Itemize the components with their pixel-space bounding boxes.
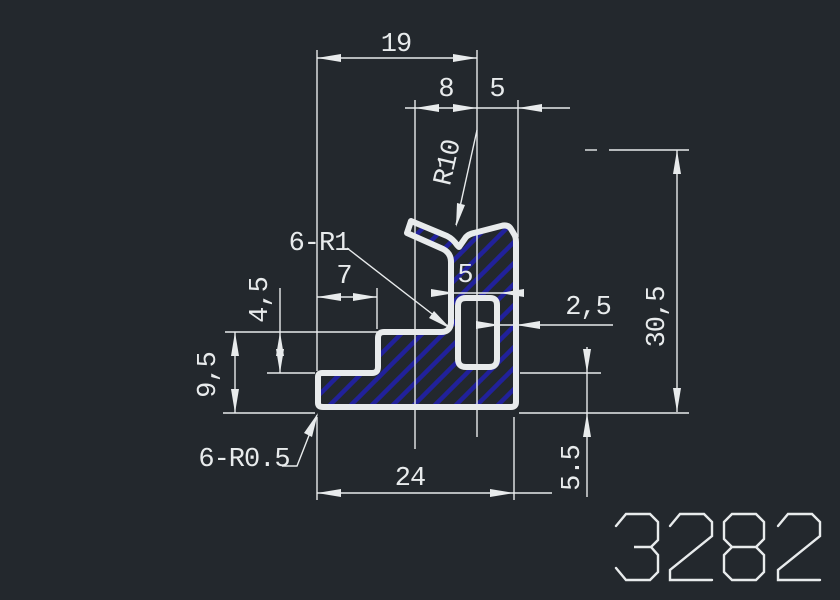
dim-label-top-width: 19 bbox=[381, 30, 411, 60]
dim-label-corner: 6-R0.5 bbox=[198, 445, 289, 475]
drawing-background bbox=[0, 0, 840, 600]
dim-label-total-height: 30,5 bbox=[643, 287, 673, 348]
dim-label-shelf-height: 4,5 bbox=[246, 277, 276, 323]
dim-label-head-offset: 8 bbox=[438, 75, 453, 105]
cad-viewport: 19 8 5 7 5 2,5 24 4,5 9,5 5.5 30,5 R10 6… bbox=[0, 0, 840, 600]
dim-label-base-width: 24 bbox=[395, 464, 425, 494]
cad-drawing: 19 8 5 7 5 2,5 24 4,5 9,5 5.5 30,5 R10 6… bbox=[0, 0, 840, 600]
dim-label-wall: 2,5 bbox=[565, 293, 611, 323]
dim-label-left-height: 9,5 bbox=[194, 352, 224, 398]
dim-label-fillet: 6-R1 bbox=[289, 229, 350, 259]
dim-label-head-side: 5 bbox=[489, 75, 504, 105]
dim-label-channel: 5 bbox=[457, 261, 472, 291]
dim-label-base-right: 5.5 bbox=[558, 445, 588, 491]
dim-label-step-width: 7 bbox=[336, 262, 351, 292]
